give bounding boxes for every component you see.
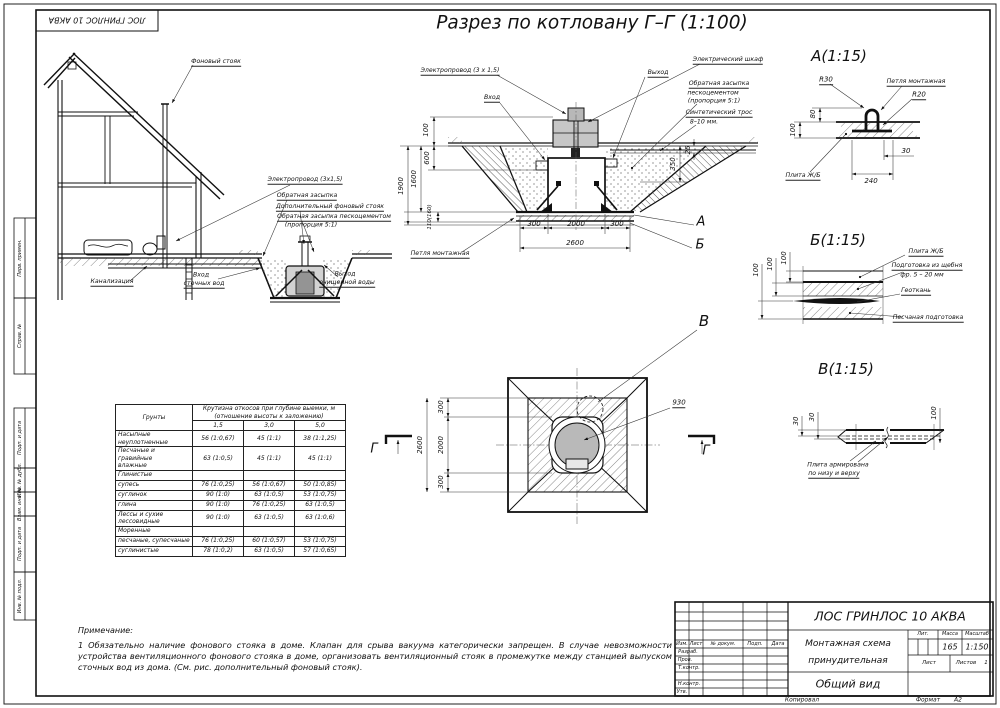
detail-v-plate-label-1: Плита армирована xyxy=(807,462,868,469)
dim-350: 350 xyxy=(669,157,677,170)
detail-a-loop-label: Петля монтажная xyxy=(887,78,946,87)
table-row: Песчаные и гравийныевлажные 63 (1:0,5) 4… xyxy=(116,447,346,471)
table-row: суглинистые 78 (1:0,2) 63 (1:0,5) 57 (1:… xyxy=(116,546,346,556)
detail-a-dim-240: 240 xyxy=(864,177,877,185)
detail-v-plate-label-2: по низу и верху xyxy=(808,470,859,479)
tb-col-izm: Изм. xyxy=(676,641,688,647)
plan-marker-g-right: Г xyxy=(702,444,709,459)
detail-b-dim-100a: 100 xyxy=(780,251,788,264)
detail-a-plate-label: Плита Ж/Б xyxy=(786,172,821,181)
table-header-soils: Грунты xyxy=(116,405,193,431)
table-row-group: Моренные xyxy=(116,526,346,536)
detail-a-dim-30: 30 xyxy=(902,147,911,155)
section-outlet-label: Выход xyxy=(648,69,669,78)
detail-marker-b: Б xyxy=(696,238,705,253)
dim-300-left: 300 xyxy=(527,220,540,228)
table-depth-3: 5,0 xyxy=(295,421,346,431)
main-title: Разрез по котловану Г–Г (1:100) xyxy=(436,13,748,34)
tb-col-data: Дата xyxy=(772,641,785,647)
section-backfill-label-1: Обратная засыпка xyxy=(689,80,749,89)
soil-slope-table: Грунты Крутизна откосов при глубине выем… xyxy=(115,404,346,557)
detail-v-title: В(1:15) xyxy=(818,360,874,378)
dim-100: 100 xyxy=(422,123,430,136)
table-row: Лессы и сухие лессовидные 90 (1:0) 63 (1… xyxy=(116,510,346,526)
tb-massa: Масса xyxy=(942,631,958,637)
dim-2000: 2000 xyxy=(567,220,585,228)
table-header-span-1: Крутизна откосов при глубине выемки, м xyxy=(195,405,343,413)
margin-podp-data-2: Подп. и дата xyxy=(17,527,23,561)
tb-name-1: Монтажная схема xyxy=(805,639,891,649)
dim-600: 600 xyxy=(423,151,431,164)
detail-v-dim-30a: 30 xyxy=(792,417,800,426)
house-extra-riser-label: Дополнительный фоновый стояк xyxy=(276,203,384,212)
detail-b-gravel-label-2: фр. 5 – 20 мм xyxy=(900,272,943,279)
house-outlet-label-1: Выход xyxy=(335,271,356,278)
detail-b-gravel-label-1: Подготовка из щебня xyxy=(892,262,963,271)
tb-row-tkontr: Т.контр. xyxy=(678,665,700,671)
house-sewer-label: Канализация xyxy=(90,278,133,287)
tb-row-nkontr: Н.контр. xyxy=(678,681,700,687)
dim-1600: 1600 xyxy=(410,170,418,188)
plan-marker-g-left: Г xyxy=(370,442,377,457)
sheet-frame xyxy=(4,4,996,704)
house-backfill-label: Обратная засыпка xyxy=(277,192,337,201)
tb-massa-value: 165 xyxy=(942,643,957,652)
dim-1900: 1900 xyxy=(397,177,405,195)
detail-a-r20: R20 xyxy=(912,90,926,100)
table-row: Насыпные неуплотненные 56 (1:0,67) 45 (1… xyxy=(116,431,346,447)
table-row-group: Глинистые xyxy=(116,470,346,480)
detail-v-dim-30b: 30 xyxy=(808,413,816,422)
plan-dim-300-top: 300 xyxy=(437,400,445,413)
drawing-linework xyxy=(0,0,1000,708)
house-wire-label: Электропровод (3х1,5) xyxy=(268,176,343,185)
house-backfill-cement-label: Обратная засыпка пескоцементом xyxy=(277,213,391,222)
tb-doc-title: ЛОС ГРИНЛОС 10 АКВА xyxy=(814,609,966,624)
table-row: песчаные, супесчаные 76 (1:0,25) 60 (1:0… xyxy=(116,536,346,546)
table-depth-1: 1,5 xyxy=(193,421,244,431)
house-inlet-label-1: Вход xyxy=(193,272,209,279)
tb-lit: Лит. xyxy=(917,631,929,637)
tb-kopiroval: Копировал xyxy=(785,697,819,704)
margin-inv-podl: Инв. № подл. xyxy=(17,579,23,614)
detail-b-dim-100b: 100 xyxy=(766,257,774,270)
detail-v-dim-100: 100 xyxy=(930,406,938,419)
margin-vzam-inv: Взам. инв. № xyxy=(17,487,23,521)
tb-listov-value: 1 xyxy=(984,660,988,666)
section-backfill-label-3: (пропорция 5:1) xyxy=(688,98,740,105)
tb-listov: Листов xyxy=(956,660,977,666)
detail-marker-a: А xyxy=(697,215,706,230)
section-inlet-label: Вход xyxy=(484,94,500,103)
section-backfill-label-2: пескоцементом xyxy=(687,90,738,97)
plan-dim-2600: 2600 xyxy=(416,436,424,454)
plan-dim-930: 930 xyxy=(672,398,685,408)
tb-format: Формат xyxy=(916,697,940,704)
tb-col-list: Лист xyxy=(690,641,703,647)
tb-list: Лист xyxy=(922,660,936,666)
plan-dim-300-bottom: 300 xyxy=(437,475,445,488)
detail-b-title: Б(1:15) xyxy=(810,231,866,249)
tb-format-value: А2 xyxy=(954,697,962,704)
margin-sprav-no: Справ. № xyxy=(17,324,23,348)
dim-300-right: 300 xyxy=(610,220,623,228)
table-row: глина 90 (1:0) 76 (1:0,25) 63 (1:0,5) xyxy=(116,500,346,510)
table-depth-2: 3,0 xyxy=(244,421,295,431)
tb-row-prov: Пров. xyxy=(678,657,693,663)
drawing-sheet: ЛОС ГРИНЛОС 10 АКВА Перв. примен. Справ.… xyxy=(0,0,1000,708)
margin-podp-data-1: Подп. и дата xyxy=(17,421,23,455)
detail-b-geo-label: Геоткань xyxy=(901,287,931,296)
section-rope-label-2: 8–10 мм. xyxy=(690,119,718,126)
notes-text: 1 Обязательно наличие фонового стояка в … xyxy=(78,640,672,673)
tb-row-utv: Утв. xyxy=(677,689,688,695)
detail-b-plate-label: Плита Ж/Б xyxy=(909,248,944,257)
house-inlet-label-2: сточных вод xyxy=(184,280,225,289)
table-header-span-2: (отношение высоты к заложению) xyxy=(195,413,343,421)
tb-scale-value: 1:150 xyxy=(965,643,988,652)
detail-b-dim-100c: 100 xyxy=(752,263,760,276)
tb-col-doc: № докум. xyxy=(711,641,736,647)
section-loop-label: Петля монтажная xyxy=(411,250,470,259)
detail-a-dim-100: 100 xyxy=(789,123,797,136)
house-riser-label: Фоновый стояк xyxy=(191,58,241,67)
dim-2600: 2600 xyxy=(566,239,584,247)
dim-slab-110-160: 110(160) xyxy=(427,204,433,229)
plan-dim-2000: 2000 xyxy=(437,436,445,454)
section-rope-label-1: Синтетический трос xyxy=(686,109,753,118)
detail-a-title: А(1:15) xyxy=(811,47,867,65)
house-proportion-label: (пропорция 5:1) xyxy=(285,222,337,229)
house-outlet-label-2: очищенной воды xyxy=(319,279,375,288)
detail-b-sand-label: Песчаная подготовка xyxy=(893,314,964,323)
detail-a-r30: R30 xyxy=(819,75,833,85)
tb-col-podp: Подп. xyxy=(747,641,762,647)
tb-name-2: принудительная xyxy=(808,656,887,666)
dim-25: 25 xyxy=(684,146,692,155)
notes-title: Примечание: xyxy=(78,626,133,635)
plan-marker-v: В xyxy=(699,312,709,330)
tb-view-name: Общий вид xyxy=(816,678,881,691)
section-wire-label: Электропровод (3 х 1,5) xyxy=(421,67,500,76)
tb-masshtab: Масштаб xyxy=(965,631,989,637)
table-row: супесь 76 (1:0,25) 56 (1:0,67) 50 (1:0,8… xyxy=(116,480,346,490)
tb-row-razrab: Разраб. xyxy=(678,649,698,655)
margin-perv-primen: Перв. примен. xyxy=(17,239,23,277)
detail-a-dim-80: 80 xyxy=(809,110,817,119)
top-left-stamp: ЛОС ГРИНЛОС 10 АКВА xyxy=(49,16,146,25)
section-cabinet-label: Электрический шкаф xyxy=(693,56,763,65)
table-row: суглинок 90 (1:0) 63 (1:0,5) 53 (1:0,75) xyxy=(116,490,346,500)
